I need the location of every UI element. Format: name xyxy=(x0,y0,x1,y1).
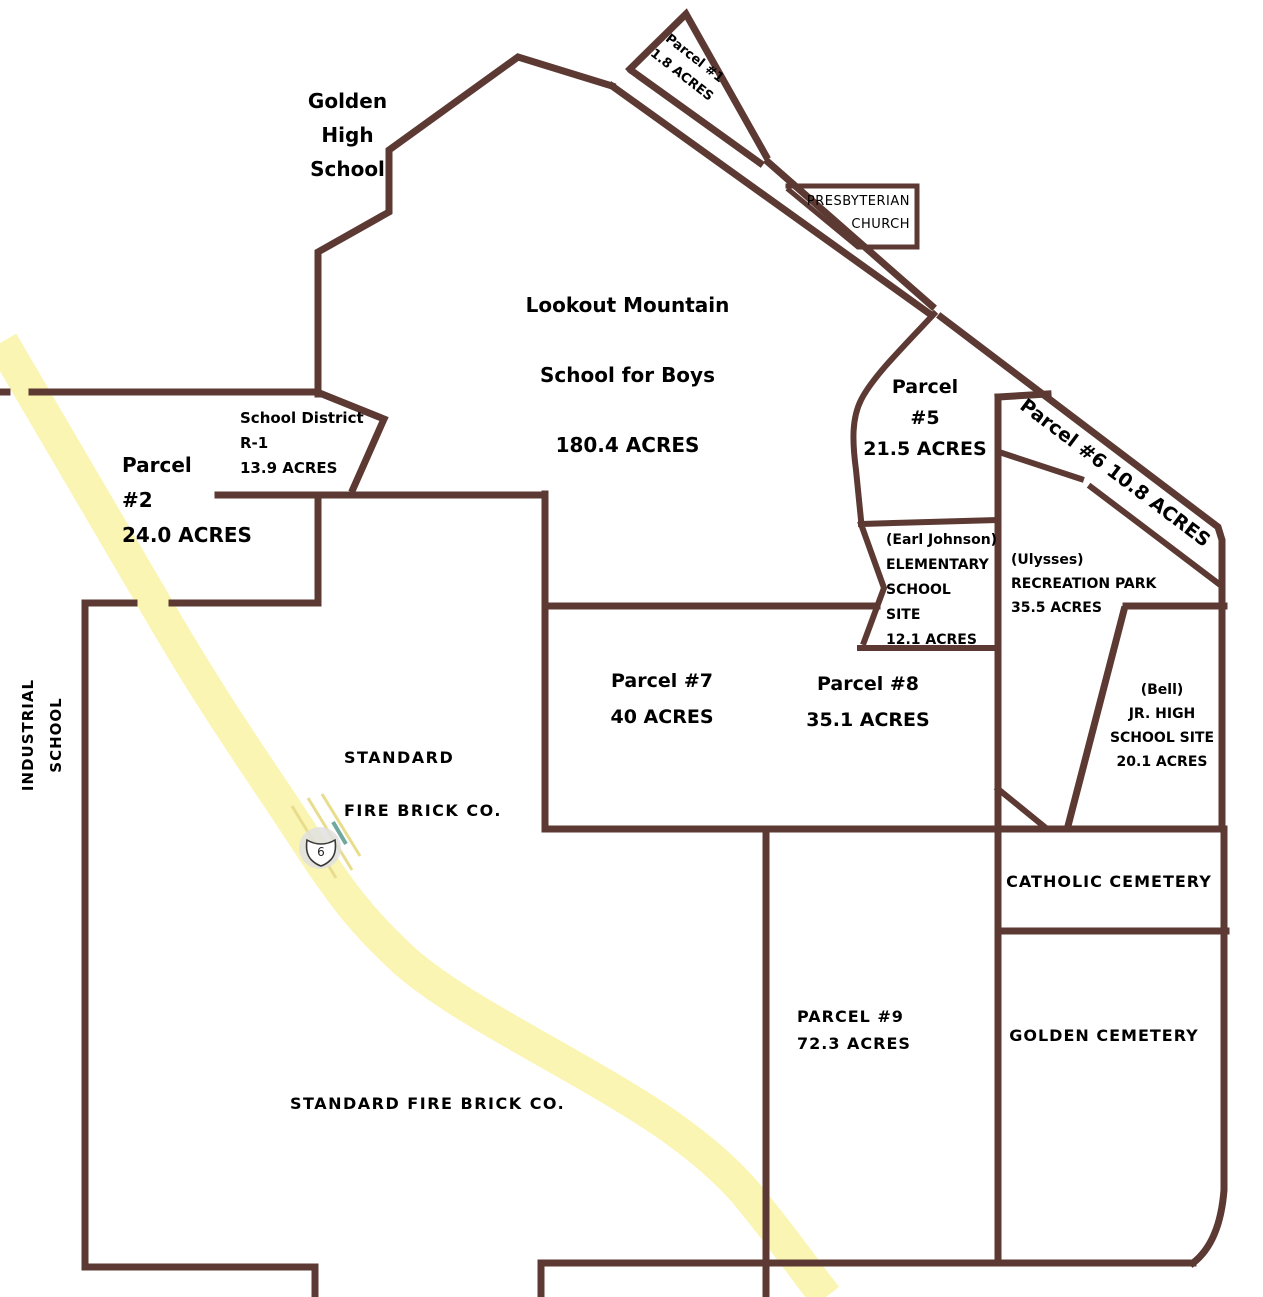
label-line: PRESBYTERIAN xyxy=(798,190,910,213)
label-presbyterian-church: PRESBYTERIAN CHURCH xyxy=(798,190,910,236)
label-line: SITE xyxy=(886,603,997,628)
label-line: 35.1 ACRES xyxy=(794,702,942,738)
label-ulysses-recreation-park: (Ulysses) RECREATION PARK 35.5 ACRES xyxy=(1011,548,1156,620)
label-line: (Bell) xyxy=(1098,678,1226,702)
label-line: #2 xyxy=(122,483,252,518)
label-line: 13.9 ACRES xyxy=(240,456,364,481)
label-line: SCHOOL SITE xyxy=(1098,726,1226,750)
boundary-cemetery-right xyxy=(1193,829,1224,1263)
label-line: High xyxy=(280,118,415,152)
label-line: #5 xyxy=(858,403,992,434)
route-6-number: 6 xyxy=(317,845,325,859)
label-line: Parcel xyxy=(858,372,992,403)
label-line: Parcel #8 xyxy=(794,666,942,702)
boundary-bottom-south xyxy=(541,1263,1193,1296)
label-golden-cemetery: GOLDEN CEMETERY xyxy=(1003,1026,1205,1045)
label-bell-jr-high: (Bell) JR. HIGH SCHOOL SITE 20.1 ACRES xyxy=(1098,678,1226,774)
label-catholic-cemetery: CATHOLIC CEMETERY xyxy=(1000,872,1218,891)
label-parcel-5: Parcel #5 21.5 ACRES xyxy=(858,372,992,465)
label-line: 24.0 ACRES xyxy=(122,518,252,553)
label-line: Lookout Mountain xyxy=(480,270,775,340)
label-line: STANDARD xyxy=(344,731,502,784)
label-line: (Ulysses) xyxy=(1011,548,1156,572)
label-line: Parcel xyxy=(122,448,252,483)
label-line: 40 ACRES xyxy=(594,699,730,735)
label-line: 21.5 ACRES xyxy=(858,434,992,465)
label-lookout-mountain-school: Lookout Mountain School for Boys 180.4 A… xyxy=(480,270,775,480)
label-line: 180.4 ACRES xyxy=(480,410,775,480)
label-standard-fire-brick-upper: STANDARD FIRE BRICK CO. xyxy=(344,731,502,837)
label-industrial-school: INDUSTRIAL SCHOOL xyxy=(14,665,70,805)
boundary-ulysses-to-cemetery xyxy=(998,789,1046,828)
label-parcel-9: PARCEL #9 72.3 ACRES xyxy=(797,1003,911,1057)
label-line: PARCEL #9 xyxy=(797,1003,911,1030)
label-parcel-7: Parcel #7 40 ACRES xyxy=(594,663,730,735)
label-line: INDUSTRIAL xyxy=(14,665,42,805)
label-line: School for Boys xyxy=(480,340,775,410)
label-line: 20.1 ACRES xyxy=(1098,750,1226,774)
label-parcel-8: Parcel #8 35.1 ACRES xyxy=(794,666,942,738)
label-line: School District xyxy=(240,406,364,431)
label-line: (Earl Johnson) xyxy=(886,528,997,553)
label-school-district-r1: School District R-1 13.9 ACRES xyxy=(240,406,364,481)
label-line: SCHOOL xyxy=(42,665,70,805)
label-line: CATHOLIC CEMETERY xyxy=(1000,872,1218,891)
label-line: CHURCH xyxy=(798,213,910,236)
label-golden-high-school: Golden High School xyxy=(280,84,415,186)
parcel-map: 6 Golden High School Parcel #1 1.8 ACRES… xyxy=(0,0,1263,1297)
label-line: FIRE BRICK CO. xyxy=(344,784,502,837)
label-line: 12.1 ACRES xyxy=(886,628,997,653)
label-line: R-1 xyxy=(240,431,364,456)
label-line: 35.5 ACRES xyxy=(1011,596,1156,620)
label-line: JR. HIGH xyxy=(1098,702,1226,726)
label-earl-johnson-elementary: (Earl Johnson) ELEMENTARY SCHOOL SITE 12… xyxy=(886,528,997,653)
label-standard-fire-brick-lower: STANDARD FIRE BRICK CO. xyxy=(290,1094,565,1113)
label-line: SCHOOL xyxy=(886,578,997,603)
label-parcel-2: Parcel #2 24.0 ACRES xyxy=(122,448,252,553)
label-line: Golden xyxy=(280,84,415,118)
label-line: STANDARD FIRE BRICK CO. xyxy=(290,1094,565,1113)
label-line: 72.3 ACRES xyxy=(797,1030,911,1057)
label-line: ELEMENTARY xyxy=(886,553,997,578)
label-line: School xyxy=(280,152,415,186)
map-canvas: 6 xyxy=(0,0,1263,1297)
label-line: RECREATION PARK xyxy=(1011,572,1156,596)
label-line: GOLDEN CEMETERY xyxy=(1003,1026,1205,1045)
label-line: Parcel #7 xyxy=(594,663,730,699)
